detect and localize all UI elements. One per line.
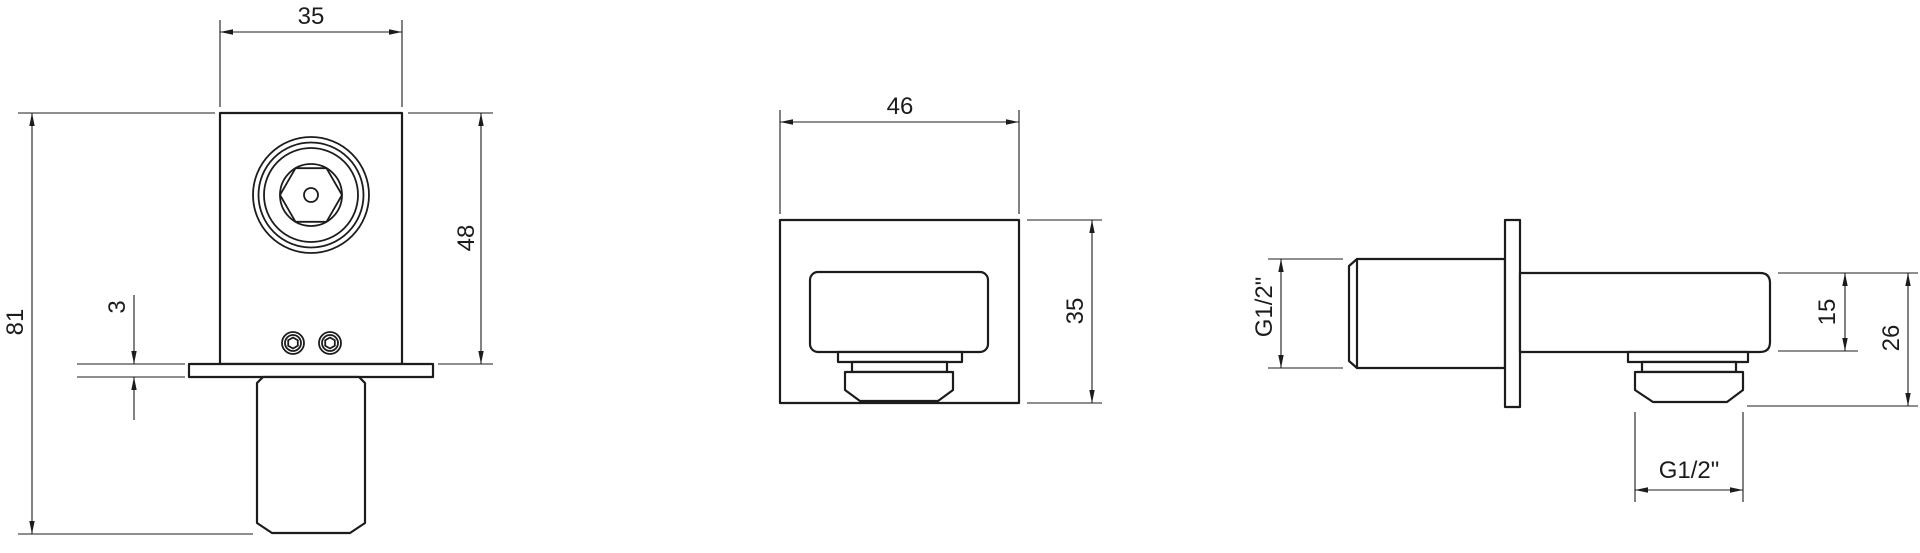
dim-label: 3 xyxy=(104,300,131,313)
dim-front-body-height: 48 xyxy=(408,113,493,364)
outlet-spigot-side xyxy=(1635,372,1743,402)
dim-bottom-plate-depth: 35 xyxy=(1027,220,1102,403)
dim-label: G1/2" xyxy=(1251,277,1278,338)
dim-front-overall-height: 81 xyxy=(2,113,253,534)
body-arm-side xyxy=(1520,273,1770,352)
side-view xyxy=(1349,220,1770,407)
dim-label: 48 xyxy=(453,225,480,252)
dim-side-outlet-thread: G1/2" xyxy=(1635,412,1743,502)
dim-label: G1/2" xyxy=(1659,457,1720,484)
front-body-outline xyxy=(220,113,402,364)
outlet-spigot-front xyxy=(257,377,365,533)
dim-label: 15 xyxy=(1814,299,1841,326)
dim-front-plate-thickness: 3 xyxy=(77,295,185,420)
dim-side-inlet-thread: G1/2" xyxy=(1251,259,1343,368)
outlet-spigot-profile xyxy=(845,372,953,401)
outlet-neck xyxy=(852,362,947,372)
drawing-svg: 35 81 48 3 xyxy=(0,0,1920,553)
outlet-neck-side xyxy=(1642,362,1736,372)
outlet-step-collar-side xyxy=(1628,352,1748,362)
wall-flange-front xyxy=(189,364,433,377)
bottom-view xyxy=(780,220,1019,403)
dim-label: 26 xyxy=(1878,325,1905,352)
dim-label: 81 xyxy=(2,309,29,336)
outlet-step-collar xyxy=(838,352,962,362)
front-view xyxy=(189,113,433,533)
technical-drawing-canvas: 35 81 48 3 xyxy=(0,0,1920,553)
wall-flange-side xyxy=(1505,220,1520,407)
body-profile xyxy=(810,272,988,352)
dim-side-overall-depth: 26 xyxy=(1747,273,1918,406)
dim-label: 46 xyxy=(887,93,914,120)
inlet-connector-side xyxy=(1349,259,1505,368)
dim-label: 35 xyxy=(1062,298,1089,325)
dim-bottom-plate-width: 46 xyxy=(780,93,1019,214)
dim-label: 35 xyxy=(298,3,325,30)
dim-front-width: 35 xyxy=(220,3,402,107)
